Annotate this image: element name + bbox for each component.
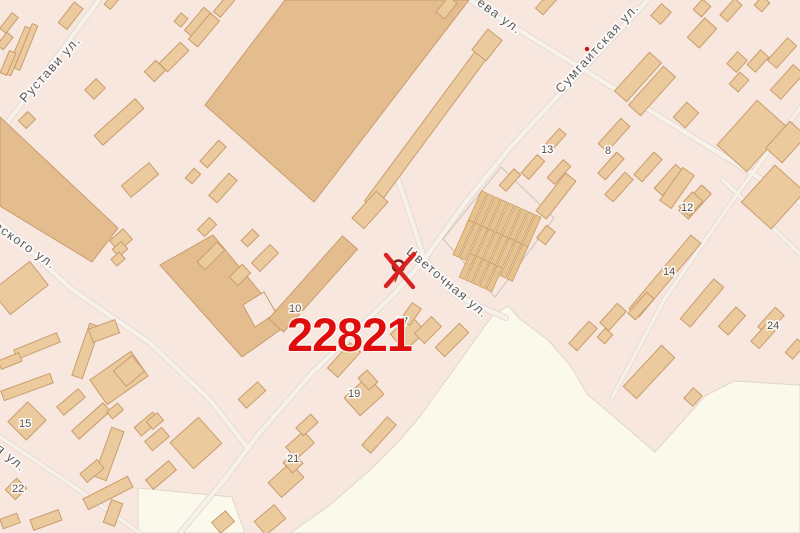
svg-text:22: 22 bbox=[12, 483, 24, 495]
svg-text:15: 15 bbox=[19, 418, 31, 430]
svg-text:22821: 22821 bbox=[287, 308, 412, 361]
svg-text:14: 14 bbox=[663, 266, 675, 278]
svg-text:21: 21 bbox=[287, 453, 299, 465]
svg-text:19: 19 bbox=[348, 388, 360, 400]
svg-text:13: 13 bbox=[541, 144, 553, 156]
svg-text:8: 8 bbox=[605, 145, 611, 157]
svg-text:12: 12 bbox=[681, 202, 693, 214]
svg-text:24: 24 bbox=[767, 320, 779, 332]
